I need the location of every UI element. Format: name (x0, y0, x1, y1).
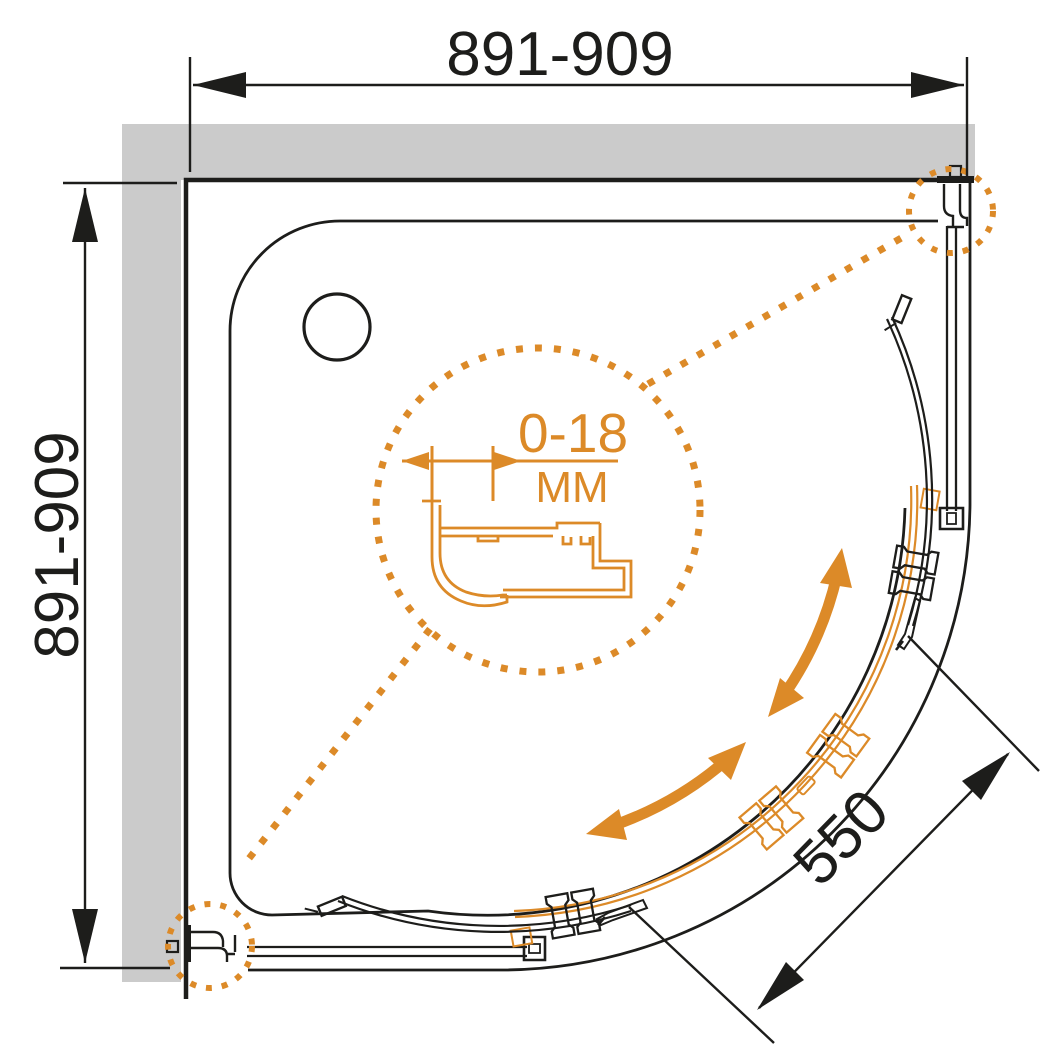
callout-leader-line (247, 629, 430, 861)
fixed-panel-bottom (247, 937, 545, 960)
technical-drawing-page: 0-18 ММ 891-909 891-909 (0, 0, 1063, 1059)
callout-leader-line (648, 237, 903, 384)
drain-circle-icon (304, 294, 370, 360)
dimension-radius: 550 (629, 636, 1039, 1043)
adjustment-detail: 0-18 ММ (402, 402, 631, 606)
door-connector (797, 776, 816, 795)
curved-double-arrow-icon (586, 742, 746, 840)
adjustment-range-label: 0-18 (518, 402, 628, 464)
fixed-panel-right (940, 226, 963, 529)
sliding-door-upper (885, 294, 933, 650)
dimension-height-label: 891-909 (23, 431, 92, 659)
door-handle-icon (305, 894, 346, 921)
shower-enclosure-diagram: 0-18 ММ 891-909 891-909 (0, 0, 1063, 1059)
aluminium-profile-section-icon (422, 501, 631, 606)
dimension-width-label: 891-909 (446, 20, 674, 89)
sliding-door-accent (511, 485, 940, 946)
detail-callout-circles (168, 169, 993, 988)
curved-double-arrow-icon (768, 548, 852, 717)
adjustment-unit-label: ММ (535, 463, 608, 512)
slide-direction-arrows (586, 548, 852, 840)
